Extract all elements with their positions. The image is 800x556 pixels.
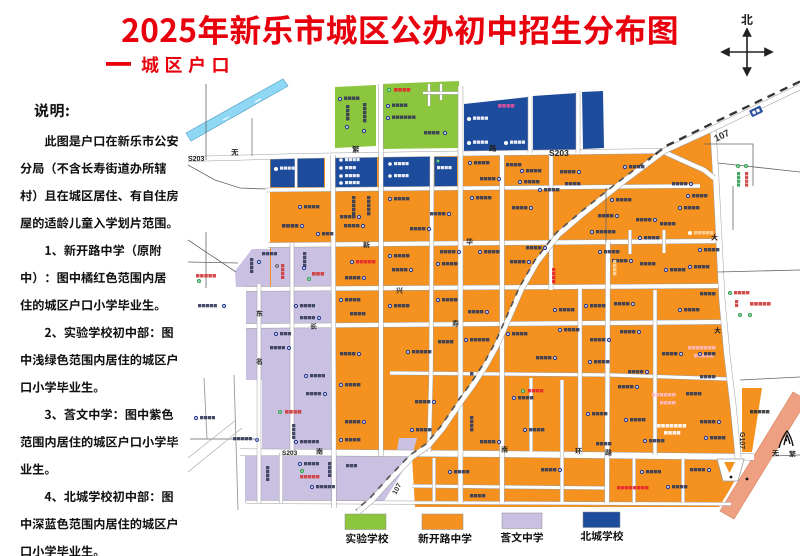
svg-text:S203: S203 — [549, 148, 569, 158]
svg-text:G107: G107 — [738, 432, 745, 449]
svg-text:S203: S203 — [282, 450, 298, 457]
svg-text:S203: S203 — [188, 156, 204, 163]
